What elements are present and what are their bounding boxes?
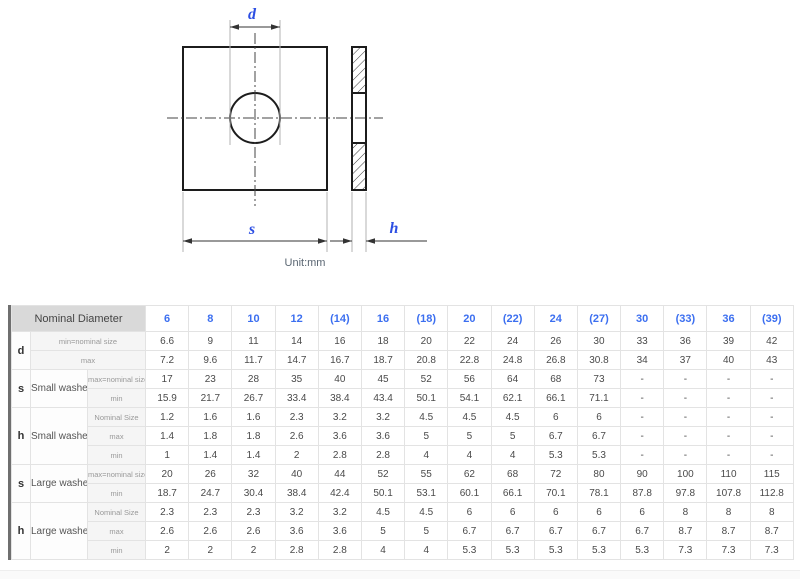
- d-label: d: [248, 6, 257, 23]
- cell: 56: [448, 370, 491, 389]
- cell: 8: [664, 503, 707, 522]
- cell: 20.8: [405, 351, 448, 370]
- cell: 54.1: [448, 389, 491, 408]
- cell: 90: [621, 465, 664, 484]
- cell: 30.8: [577, 351, 620, 370]
- cell: 4.5: [361, 503, 404, 522]
- cell: 4.5: [405, 503, 448, 522]
- cell: 11: [232, 332, 275, 351]
- cell: 1.2: [146, 408, 189, 427]
- cell: 42.4: [318, 484, 361, 503]
- cell: 5: [491, 427, 534, 446]
- dim-symbol-d: d: [12, 332, 31, 370]
- cell: 115: [750, 465, 793, 484]
- sub-label: max: [88, 427, 146, 446]
- dimension-table: Nominal Diameter681012(14)16(18)20(22)24…: [11, 305, 794, 560]
- cell: 4: [448, 446, 491, 465]
- cell: 5.3: [534, 446, 577, 465]
- col-header-18: (18): [405, 306, 448, 332]
- cell: -: [664, 408, 707, 427]
- washer-type: Large washer: [31, 503, 88, 560]
- cell: 43.4: [361, 389, 404, 408]
- cell: -: [621, 370, 664, 389]
- cell: 8.7: [664, 522, 707, 541]
- col-header-12: 12: [275, 306, 318, 332]
- cell: 8.7: [707, 522, 750, 541]
- cell: 15.9: [146, 389, 189, 408]
- cell: 26.7: [232, 389, 275, 408]
- cell: 62: [448, 465, 491, 484]
- cell: 2: [232, 541, 275, 560]
- cell: 60.1: [448, 484, 491, 503]
- sub-label: max: [88, 522, 146, 541]
- cell: 2.8: [318, 446, 361, 465]
- cell: 6.7: [534, 427, 577, 446]
- cell: 8.7: [750, 522, 793, 541]
- cell: 2: [146, 541, 189, 560]
- cell: 7.3: [664, 541, 707, 560]
- cell: 40: [275, 465, 318, 484]
- sub-label: min: [88, 389, 146, 408]
- cell: 53.1: [405, 484, 448, 503]
- cell: 2.6: [146, 522, 189, 541]
- cell: 2.6: [232, 522, 275, 541]
- cell: 4.5: [405, 408, 448, 427]
- table-row: min15.921.726.733.438.443.450.154.162.16…: [12, 389, 794, 408]
- cell: 100: [664, 465, 707, 484]
- cell: 40: [707, 351, 750, 370]
- cell: -: [707, 427, 750, 446]
- cell: 1.4: [232, 446, 275, 465]
- col-header-8: 8: [189, 306, 232, 332]
- cell: 28: [232, 370, 275, 389]
- cell: 4: [405, 541, 448, 560]
- cell: 7.3: [707, 541, 750, 560]
- cell: 26: [534, 332, 577, 351]
- col-header-30: 30: [621, 306, 664, 332]
- cell: 68: [491, 465, 534, 484]
- cell: 5: [405, 522, 448, 541]
- cell: 18.7: [361, 351, 404, 370]
- s-label: s: [248, 221, 255, 238]
- sub-label: max=nominal size: [88, 465, 146, 484]
- cell: 34: [621, 351, 664, 370]
- cell: 24: [491, 332, 534, 351]
- cell: -: [750, 370, 793, 389]
- cell: -: [621, 389, 664, 408]
- table-row: max2.62.62.63.63.6556.76.76.76.76.78.78.…: [12, 522, 794, 541]
- cell: 30: [577, 332, 620, 351]
- cell: 71.1: [577, 389, 620, 408]
- cell: 2.8: [318, 541, 361, 560]
- cell: 4: [491, 446, 534, 465]
- cell: 107.8: [707, 484, 750, 503]
- cell: 2.8: [361, 446, 404, 465]
- cell: 5.3: [621, 541, 664, 560]
- cell: 5: [448, 427, 491, 446]
- sub-label: Nominal Size: [88, 408, 146, 427]
- cell: 26: [189, 465, 232, 484]
- cell: 14: [275, 332, 318, 351]
- cell: 2.6: [275, 427, 318, 446]
- washer-type: Small washer: [31, 370, 88, 408]
- col-header-6: 6: [146, 306, 189, 332]
- dimension-table-wrap: Nominal Diameter681012(14)16(18)20(22)24…: [8, 305, 790, 560]
- cell: 16.7: [318, 351, 361, 370]
- cell: 5.3: [534, 541, 577, 560]
- cell: 45: [361, 370, 404, 389]
- cell: 38.4: [318, 389, 361, 408]
- cell: -: [750, 427, 793, 446]
- cell: 2: [189, 541, 232, 560]
- table-row: max1.41.81.82.63.63.65556.76.7----: [12, 427, 794, 446]
- cell: 2.3: [189, 503, 232, 522]
- cell: 18: [361, 332, 404, 351]
- col-header-14: (14): [318, 306, 361, 332]
- cell: 4.5: [491, 408, 534, 427]
- cell: 14.7: [275, 351, 318, 370]
- table-row: sSmall washermax=nominal size17232835404…: [12, 370, 794, 389]
- cell: 6: [621, 503, 664, 522]
- cell: 6: [448, 503, 491, 522]
- sub-label: min=nominal size: [31, 332, 146, 351]
- cell: 5.3: [491, 541, 534, 560]
- cell: 32: [232, 465, 275, 484]
- cell: 23: [189, 370, 232, 389]
- cell: 1.6: [189, 408, 232, 427]
- cell: 6.7: [577, 522, 620, 541]
- cell: -: [707, 446, 750, 465]
- cell: 80: [577, 465, 620, 484]
- cell: 70.1: [534, 484, 577, 503]
- cell: 5.3: [577, 446, 620, 465]
- cell: 6.7: [577, 427, 620, 446]
- dim-symbol-s: s: [12, 370, 31, 408]
- cell: 4: [361, 541, 404, 560]
- sub-label: min: [88, 446, 146, 465]
- cell: 16: [318, 332, 361, 351]
- cell: 62.1: [491, 389, 534, 408]
- cell: -: [707, 370, 750, 389]
- cell: 17: [146, 370, 189, 389]
- dim-symbol-h: h: [12, 408, 31, 465]
- cell: 6.7: [621, 522, 664, 541]
- cell: 24.7: [189, 484, 232, 503]
- cell: 21.7: [189, 389, 232, 408]
- cell: 3.6: [275, 522, 318, 541]
- cell: 20: [405, 332, 448, 351]
- col-header-36: 36: [707, 306, 750, 332]
- sub-label: max: [31, 351, 146, 370]
- cell: -: [664, 427, 707, 446]
- cell: 18.7: [146, 484, 189, 503]
- cell: 3.2: [318, 408, 361, 427]
- washer-type: Large washer: [31, 465, 88, 503]
- cell: 20: [146, 465, 189, 484]
- col-header-16: 16: [361, 306, 404, 332]
- cell: -: [750, 389, 793, 408]
- cell: 87.8: [621, 484, 664, 503]
- cell: -: [621, 446, 664, 465]
- cell: -: [707, 408, 750, 427]
- cell: 4.5: [448, 408, 491, 427]
- cell: 6: [534, 503, 577, 522]
- cell: 3.6: [361, 427, 404, 446]
- cell: 24.8: [491, 351, 534, 370]
- cell: 68: [534, 370, 577, 389]
- sub-label: min: [88, 484, 146, 503]
- cell: 8: [707, 503, 750, 522]
- col-header-33: (33): [664, 306, 707, 332]
- table-row: hLarge washerNominal Size2.32.32.33.23.2…: [12, 503, 794, 522]
- table-row: dmin=nominal size6.691114161820222426303…: [12, 332, 794, 351]
- cell: 1.4: [146, 427, 189, 446]
- technical-drawing: d s h Unit:mm: [0, 0, 800, 300]
- cell: 7.3: [750, 541, 793, 560]
- washer-type: Small washer: [31, 408, 88, 465]
- cell: 6: [577, 503, 620, 522]
- cell: 5: [405, 427, 448, 446]
- cell: 33: [621, 332, 664, 351]
- cell: 50.1: [405, 389, 448, 408]
- cell: -: [621, 408, 664, 427]
- cell: 7.2: [146, 351, 189, 370]
- cell: 97.8: [664, 484, 707, 503]
- sub-label: max=nominal size: [88, 370, 146, 389]
- cell: 44: [318, 465, 361, 484]
- cell: 1.4: [189, 446, 232, 465]
- cell: 6.7: [534, 522, 577, 541]
- header-row: Nominal Diameter681012(14)16(18)20(22)24…: [12, 306, 794, 332]
- col-header-27: (27): [577, 306, 620, 332]
- table-row: max7.29.611.714.716.718.720.822.824.826.…: [12, 351, 794, 370]
- col-header-39: (39): [750, 306, 793, 332]
- col-header-22: (22): [491, 306, 534, 332]
- cell: 52: [361, 465, 404, 484]
- cell: 22: [448, 332, 491, 351]
- dim-symbol-s: s: [12, 465, 31, 503]
- cell: 2.3: [146, 503, 189, 522]
- cell: 33.4: [275, 389, 318, 408]
- cell: 72: [534, 465, 577, 484]
- cell: 66.1: [534, 389, 577, 408]
- cell: 1: [146, 446, 189, 465]
- cell: 36: [664, 332, 707, 351]
- cell: -: [750, 446, 793, 465]
- cell: -: [621, 427, 664, 446]
- cell: 2: [275, 446, 318, 465]
- dimension-h: h: [330, 192, 427, 252]
- h-label: h: [390, 220, 399, 237]
- cell: 3.2: [275, 503, 318, 522]
- cell: 78.1: [577, 484, 620, 503]
- sub-label: min: [88, 541, 146, 560]
- sub-label: Nominal Size: [88, 503, 146, 522]
- cell: -: [664, 389, 707, 408]
- cell: 8: [750, 503, 793, 522]
- cell: 39: [707, 332, 750, 351]
- corner-label: Nominal Diameter: [12, 306, 146, 332]
- cell: 3.2: [318, 503, 361, 522]
- col-header-24: 24: [534, 306, 577, 332]
- cell: 55: [405, 465, 448, 484]
- cell: 2.6: [189, 522, 232, 541]
- cell: 64: [491, 370, 534, 389]
- unit-note: Unit:mm: [285, 257, 326, 269]
- cell: 52: [405, 370, 448, 389]
- cell: 2.3: [232, 503, 275, 522]
- cell: 6: [577, 408, 620, 427]
- cell: 43: [750, 351, 793, 370]
- col-header-10: 10: [232, 306, 275, 332]
- cell: 22.8: [448, 351, 491, 370]
- cell: 112.8: [750, 484, 793, 503]
- cell: 6.7: [448, 522, 491, 541]
- table-row: min11.41.422.82.84445.35.3----: [12, 446, 794, 465]
- table-row: hSmall washerNominal Size1.21.61.62.33.2…: [12, 408, 794, 427]
- table-row: min2222.82.8445.35.35.35.35.37.37.37.3: [12, 541, 794, 560]
- cell: 66.1: [491, 484, 534, 503]
- cell: -: [750, 408, 793, 427]
- cell: 4: [405, 446, 448, 465]
- cell: 9.6: [189, 351, 232, 370]
- cell: -: [664, 370, 707, 389]
- table-row: sLarge washermax=nominal size20263240445…: [12, 465, 794, 484]
- cell: 26.8: [534, 351, 577, 370]
- cell: 37: [664, 351, 707, 370]
- cell: 6: [491, 503, 534, 522]
- cell: 35: [275, 370, 318, 389]
- dim-symbol-h: h: [12, 503, 31, 560]
- cell: 9: [189, 332, 232, 351]
- cell: 1.8: [189, 427, 232, 446]
- cell: 38.4: [275, 484, 318, 503]
- cell: 3.2: [361, 408, 404, 427]
- cell: 5.3: [577, 541, 620, 560]
- cell: 11.7: [232, 351, 275, 370]
- cell: 1.6: [232, 408, 275, 427]
- cell: 5.3: [448, 541, 491, 560]
- table-row: min18.724.730.438.442.450.153.160.166.17…: [12, 484, 794, 503]
- cell: 6: [534, 408, 577, 427]
- cell: 6.7: [491, 522, 534, 541]
- cell: 110: [707, 465, 750, 484]
- cell: 2.3: [275, 408, 318, 427]
- cell: 6.6: [146, 332, 189, 351]
- cell: 73: [577, 370, 620, 389]
- cell: 40: [318, 370, 361, 389]
- col-header-20: 20: [448, 306, 491, 332]
- cell: 5: [361, 522, 404, 541]
- cell: 30.4: [232, 484, 275, 503]
- cell: 3.6: [318, 427, 361, 446]
- cell: 2.8: [275, 541, 318, 560]
- cell: 50.1: [361, 484, 404, 503]
- cell: -: [664, 446, 707, 465]
- cell: 3.6: [318, 522, 361, 541]
- cell: 1.8: [232, 427, 275, 446]
- cell: -: [707, 389, 750, 408]
- cell: 42: [750, 332, 793, 351]
